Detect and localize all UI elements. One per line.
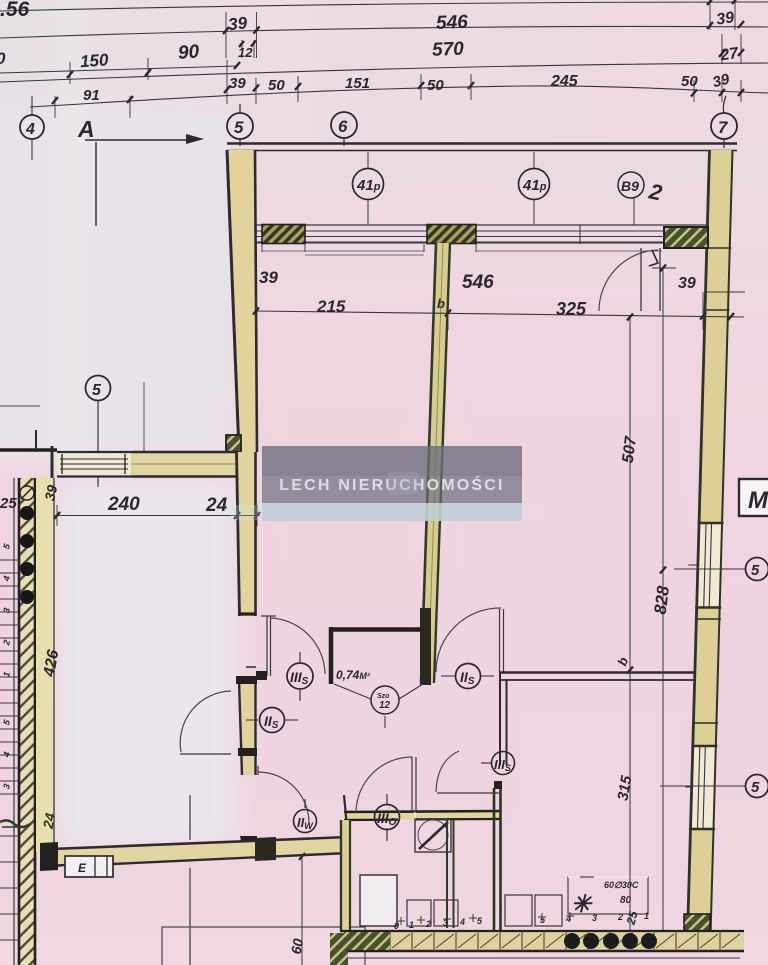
svg-text:90: 90 <box>177 41 200 63</box>
svg-text:39: 39 <box>678 275 696 292</box>
svg-text:215: 215 <box>316 297 346 316</box>
svg-text:4: 4 <box>459 917 465 927</box>
svg-text:5: 5 <box>751 779 760 796</box>
svg-text:60∅30C: 60∅30C <box>604 880 639 890</box>
svg-text:39: 39 <box>229 75 246 92</box>
svg-text:828: 828 <box>651 584 673 615</box>
svg-text:24: 24 <box>40 811 59 830</box>
svg-text:6: 6 <box>338 117 348 136</box>
svg-text:12: 12 <box>238 45 253 60</box>
svg-text:1: 1 <box>409 920 414 930</box>
svg-text:240: 240 <box>107 494 140 515</box>
svg-text:2: 2 <box>617 912 623 922</box>
svg-text:50: 50 <box>427 77 444 94</box>
svg-text:E: E <box>78 861 87 875</box>
svg-text:150: 150 <box>79 50 109 71</box>
svg-text:546: 546 <box>436 12 469 34</box>
svg-text:7: 7 <box>718 118 729 137</box>
svg-text:✳: ✳ <box>571 891 593 918</box>
svg-text:570: 570 <box>432 39 465 61</box>
svg-text:39: 39 <box>259 268 278 287</box>
svg-text:0,74M²: 0,74M² <box>336 668 371 682</box>
svg-text:24: 24 <box>205 495 228 516</box>
svg-text:.56: .56 <box>0 0 30 21</box>
svg-text:546: 546 <box>462 272 494 293</box>
svg-text:50: 50 <box>268 77 285 94</box>
svg-text:3: 3 <box>592 913 597 923</box>
svg-text:5: 5 <box>92 382 102 399</box>
svg-text:B9: B9 <box>621 178 639 194</box>
svg-text:0: 0 <box>394 921 399 931</box>
svg-text:1: 1 <box>644 911 649 921</box>
svg-text:91: 91 <box>83 87 100 104</box>
svg-text:60: 60 <box>288 937 306 955</box>
svg-text:507: 507 <box>620 434 640 464</box>
svg-text:39: 39 <box>227 13 248 34</box>
svg-text:325: 325 <box>556 299 587 319</box>
svg-text:27: 27 <box>718 45 740 65</box>
svg-text:151: 151 <box>345 75 370 92</box>
svg-text:0: 0 <box>0 49 6 68</box>
svg-text:2: 2 <box>425 919 431 929</box>
svg-text:12: 12 <box>379 700 391 711</box>
svg-text:M: M <box>748 487 768 514</box>
svg-text:50: 50 <box>681 73 698 90</box>
svg-text:b: b <box>437 296 445 311</box>
svg-text:A: A <box>77 116 95 142</box>
svg-text:245: 245 <box>550 73 579 90</box>
svg-text:5: 5 <box>751 562 760 579</box>
svg-text:Szo: Szo <box>377 693 390 700</box>
svg-text:5: 5 <box>234 118 244 137</box>
svg-text:39: 39 <box>715 9 735 28</box>
svg-text:4: 4 <box>25 121 35 138</box>
svg-text:25: 25 <box>0 495 17 512</box>
